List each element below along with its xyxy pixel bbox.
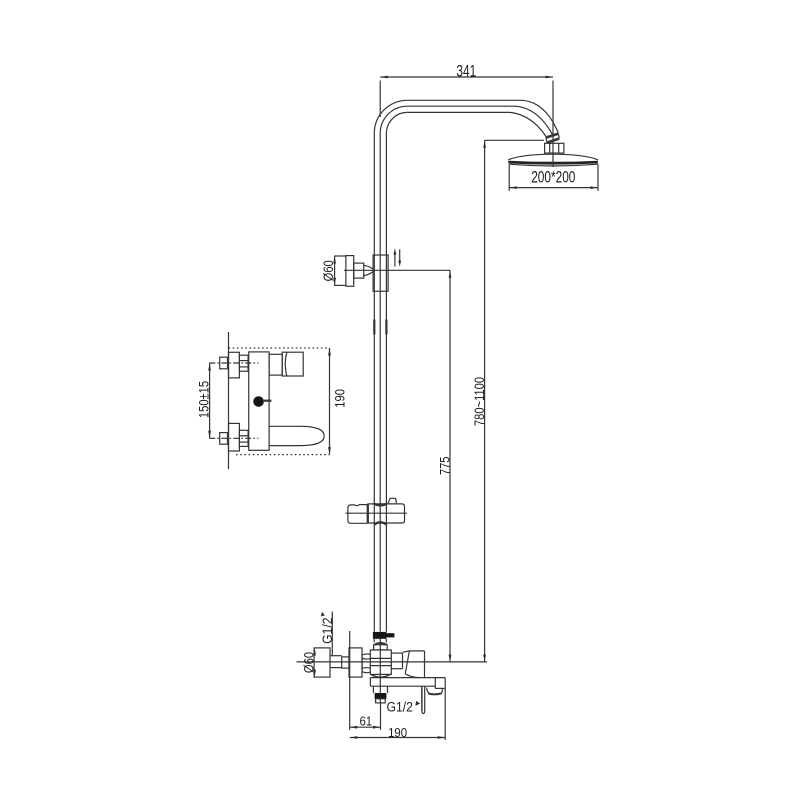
svg-text:190: 190 [332,389,347,408]
svg-text:200*200: 200*200 [531,169,575,187]
svg-text:190: 190 [388,725,407,740]
svg-text:150±15: 150±15 [196,381,211,418]
svg-text:Ø60: Ø60 [301,652,316,673]
svg-text:61: 61 [359,714,372,729]
svg-text:775: 775 [437,456,452,475]
svg-text:Ø60: Ø60 [321,260,336,281]
svg-text:780~1100: 780~1100 [472,377,487,426]
svg-text:G1/2: G1/2 [387,699,413,715]
svg-text:G1/2: G1/2 [319,618,335,644]
svg-text:341: 341 [456,63,476,81]
